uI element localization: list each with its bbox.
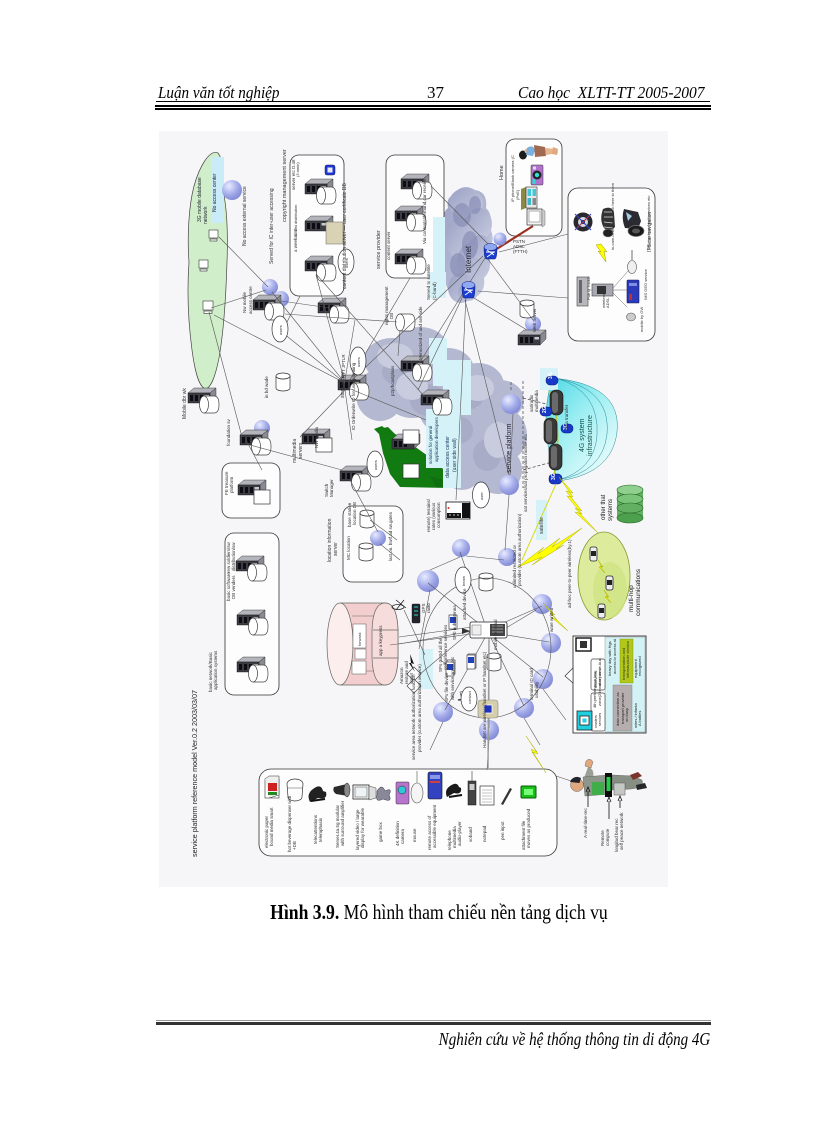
svg-text:infrastructure: infrastructure [587,415,594,456]
svg-text:on busy: on busy [624,708,629,722]
svg-text:content server: content server [386,231,391,260]
svg-text:mouse: mouse [412,828,417,842]
svg-text:services: services [598,713,602,726]
svg-text:SPb hub antenna: SPb hub antenna [452,605,457,640]
svg-text:pen input: pen input [500,821,505,840]
svg-text:application developers: application developers [434,416,439,462]
svg-text:distribution/sw: distribution/sw [231,542,236,571]
svg-text:Internet: Internet [464,245,473,273]
svg-text:Mobile dbr wk: Mobile dbr wk [182,388,188,419]
svg-text:No access center: No access center [212,173,218,212]
svg-text:smart: smart [409,672,414,684]
svg-text:provider (custom area authoriz: provider (custom area authorization serv… [417,664,422,752]
svg-text:self-reference services: self-reference services [443,624,448,670]
svg-text:display for wearable: display for wearable [360,807,365,848]
svg-text:(FTTH): (FTTH) [513,249,528,254]
svg-text:server: server [333,542,339,556]
svg-text:(PoE): (PoE) [515,189,520,200]
svg-text:communications: communications [635,568,642,616]
svg-text:infrastructure service: infrastructure service [625,640,630,678]
svg-text:users: users [278,325,283,335]
svg-text:compute: compute [605,828,610,846]
svg-text:network: network [203,206,209,224]
svg-text:self peace network: self peace network [619,812,624,850]
svg-text:solution for general: solution for general [428,426,433,464]
svg-text:p2p/bcastplans: p2p/bcastplans [390,365,395,396]
svg-text:4G system: 4G system [579,418,586,452]
svg-text:foundation sv: foundation sv [226,418,231,446]
svg-text:audio-player: audio-player [457,821,462,846]
svg-text:Handset are wireless(handset o: Handset are wireless(handset or IP hands… [482,651,487,748]
svg-text:(C-band): (C-band) [432,282,437,300]
svg-text:copyright management server: copyright management server [282,149,288,222]
svg-text:DB venders: DB venders [231,575,236,599]
svg-text:multi-hop: multi-hop [628,585,635,612]
svg-text:ITS car navigation: ITS car navigation [647,211,653,252]
svg-text:Memorized of and sell side: Memorized of and sell side [418,306,423,360]
svg-text:store server: store server [340,371,346,398]
svg-text:Home: Home [499,165,505,180]
svg-text:(user side wall): (user side wall) [452,438,458,472]
svg-text:platform: platform [229,476,234,493]
svg-text:bound media smart: bound media smart [269,807,274,846]
svg-text:Nw mobile: Nw mobile [242,291,247,313]
svg-text:+DB: +DB [292,841,297,850]
svg-text:SPs file device: SPs file device [444,672,449,702]
svg-text:in bd wade: in bd wade [264,376,269,398]
svg-text:application systems: application systems [213,650,218,690]
svg-text:Web Server: Web Server [532,308,537,332]
svg-text:ad-hoc peer-to-peer wireless(b: ad-hoc peer-to-peer wireless(by.1) [567,539,572,608]
svg-text:3G: 3G [548,372,554,379]
svg-text:ID Orderwrite ID for user plan: ID Orderwrite ID for user planning [351,362,356,430]
svg-text:accessible equipment: accessible equipment [432,804,437,848]
svg-text:access centre: access centre [248,286,253,314]
svg-text:Served for IC inter-user acces: Served for IC inter-user accessing [269,188,275,264]
svg-text:access to access at: access to access at [612,638,617,674]
svg-text:ADSL: ADSL [605,297,610,308]
svg-text:IMS GEO service: IMS GEO service [643,268,648,300]
svg-text:No access external service: No access external service [242,186,248,246]
svg-text:forward: forward [357,633,362,646]
svg-text:Manager: Manager [329,479,334,497]
svg-text:location DB: location DB [352,502,357,525]
svg-text:camera: camera [400,828,405,844]
svg-text:data access center: data access center [445,436,451,478]
svg-text:beam: beam [461,575,466,586]
svg-text:with surround amplifier: with surround amplifier [340,800,345,846]
svg-text:mobile by GW: mobile by GW [639,307,644,332]
svg-text:3G: 3G [551,473,557,480]
svg-text:servers: servers [298,442,304,459]
svg-text:service platform reference mod: service platform reference model Ver.0.2… [190,690,199,857]
svg-text:server etc D.48: server etc D.48 [291,159,296,190]
svg-text:attached device: attached device [462,588,467,620]
svg-text:provider (custom area authoriz: provider (custom area authorization) [517,513,522,586]
svg-text:A-real-time-rec: A-real-time-rec [583,807,588,838]
svg-text:service provider: service provider [376,230,382,269]
svg-text:Pub D Trickle: Pub D Trickle [586,275,591,300]
svg-text:last on. bwtf.ad sw.gates: last on. bwtf.ad sw.gates [388,511,393,561]
svg-text:voband: voband [468,827,473,842]
svg-text:DB: DB [389,313,394,319]
svg-text:MC location: MC location [346,536,351,560]
svg-text:radio: radio [426,602,431,613]
svg-text:users: users [356,357,361,367]
svg-text:user: user [479,492,484,500]
svg-text:mobile terminal: mobile terminal [493,619,498,650]
svg-text:A battles: A battles [637,711,642,726]
svg-text:data transfer: data transfer [564,404,569,430]
svg-text:at services: at services [598,669,602,686]
svg-text:other that: other that [601,494,607,520]
svg-text:NW media: NW media [314,426,319,448]
svg-text:telemphasis: telemphasis [318,817,323,842]
svg-text:multimedia: multimedia [534,390,539,412]
svg-text:with service areas etc: with service areas etc [450,656,455,700]
svg-text:sat services/sat propagation m: sat services/sat propagation mobile.etc [523,433,528,512]
svg-text:contact: contact [467,690,472,704]
svg-text:Served to satellite: Served to satellite [426,264,431,300]
svg-text:3G test distribution: 3G test distribution [293,205,298,238]
svg-text:app a keypress: app a keypress [378,625,383,656]
svg-text:game box: game box [378,821,383,842]
svg-text:systems: systems [608,499,614,521]
svg-text:recognized: recognized [637,656,642,676]
svg-text:ware written: ware written [549,607,554,632]
svg-text:in-care-of terms in-touch here: in-care-of terms in-touch here to them [610,182,615,250]
svg-text:users: users [373,460,378,470]
svg-text:notepad: notepad [482,825,487,842]
svg-text:moves as produced: moves as produced [526,808,531,848]
svg-text:content distribution server —: content distribution server — user certi… [342,182,348,289]
svg-text:service area network authoriza: service area network authorization funct… [411,674,416,760]
svg-text:consumption: consumption [436,502,441,528]
svg-text:usability: usability [534,681,539,698]
svg-text:2G: 2G [542,406,548,413]
svg-text:satellite: satellite [539,517,545,534]
svg-text:Via contents/demand,car receiv: Via contents/demand,car receive [422,178,427,244]
